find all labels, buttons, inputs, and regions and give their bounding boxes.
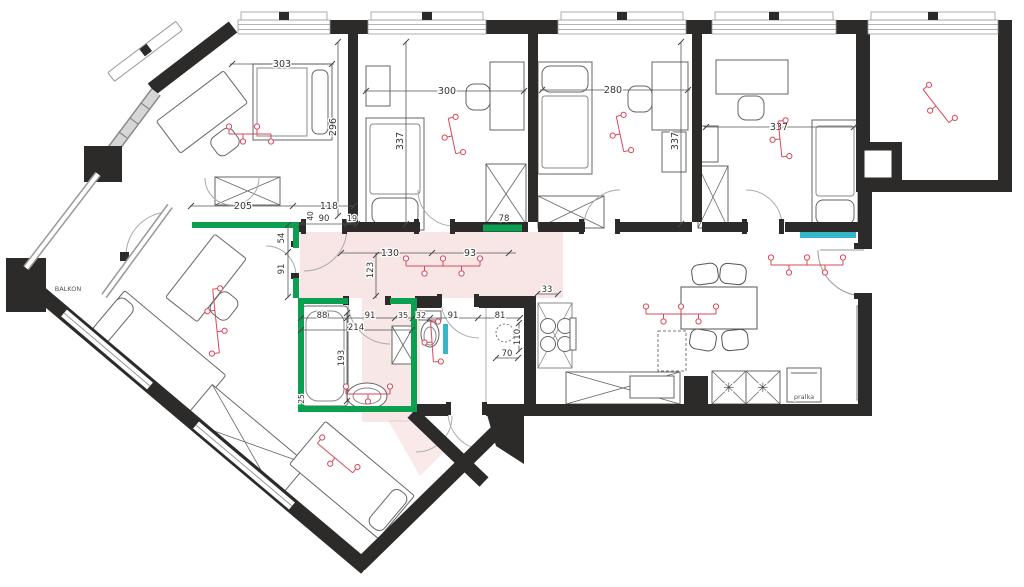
- wc-top-wall: [479, 296, 524, 308]
- door-jamb: [474, 294, 479, 307]
- dining-chair: [719, 263, 747, 286]
- dim-280: 280: [604, 85, 622, 96]
- socket-annotation: [606, 112, 634, 156]
- balcony-glazing-inner-fill: [104, 206, 170, 296]
- floor-plan-stage: ✳✳30329630033728033733720511890194054917…: [0, 0, 1024, 587]
- top-wall: [686, 20, 712, 34]
- dim-33: 33: [542, 285, 553, 295]
- balcony-glazing-outer-fill: [26, 174, 98, 268]
- door-jamb: [854, 293, 872, 299]
- room1-pillow: [312, 70, 328, 134]
- door-jamb: [437, 294, 442, 307]
- dim-88: 88: [317, 311, 328, 321]
- socket-annotation: [768, 255, 845, 275]
- dim-337-r2: 337: [395, 132, 406, 150]
- top-wall: [330, 20, 368, 34]
- dim-40: 40: [306, 211, 315, 221]
- dim-214: 214: [348, 323, 364, 333]
- room4-pillow: [816, 200, 854, 224]
- dining-chair: [691, 262, 720, 285]
- cooker-burner: [541, 319, 556, 334]
- wc-right-wall: [524, 296, 536, 404]
- dim-91-left: 91: [277, 264, 287, 275]
- room1-chair: [208, 125, 242, 158]
- dim-123: 123: [366, 262, 376, 278]
- socket-annotation: [914, 81, 959, 131]
- bottom-wall: [516, 404, 872, 416]
- radiator-mark-teal: [443, 324, 448, 354]
- cooker-handle: [570, 318, 576, 350]
- room-divider-1-2: [348, 34, 358, 222]
- burner-icon: ✳: [758, 381, 769, 396]
- corridor-wall: [785, 222, 858, 232]
- corridor-wall: [702, 222, 748, 232]
- corridor-wall: [358, 222, 420, 232]
- dim-54: 54: [277, 233, 287, 244]
- window: [712, 12, 836, 34]
- top-wall: [486, 20, 558, 34]
- shaft-opening: [864, 150, 892, 178]
- room-divider-3-4: [692, 34, 702, 222]
- door-jamb: [779, 219, 784, 234]
- door-jamb: [482, 402, 487, 415]
- dim-303: 303: [273, 59, 291, 70]
- cooker-burner: [541, 337, 556, 352]
- room3-pillow: [542, 66, 588, 92]
- door-jamb: [446, 402, 451, 415]
- dim-110: 110: [513, 329, 523, 345]
- vestibule-pink-zone: [388, 420, 448, 476]
- dim-118: 118: [320, 201, 338, 212]
- floor-plan-svg: ✳✳30329630033728033733720511890194054917…: [0, 0, 1024, 587]
- dining-table: [681, 287, 757, 329]
- dining-chair: [688, 328, 717, 352]
- room4-wardrobe: [698, 166, 728, 228]
- room4-door-arc: [746, 190, 782, 226]
- washer-label: pralka: [794, 393, 814, 401]
- right-wall-top-room: [998, 20, 1012, 192]
- door-jamb: [854, 243, 872, 249]
- kitchen-counter-inner: [630, 376, 674, 398]
- dim-35: 35: [398, 311, 408, 320]
- burner-icon: ✳: [724, 381, 735, 396]
- room4-chair: [738, 96, 764, 120]
- room2-desk: [490, 62, 524, 130]
- dim-337-r3: 337: [670, 132, 681, 150]
- corridor-pink-zone: [300, 232, 563, 298]
- dim-90: 90: [319, 214, 330, 224]
- wing-wardrobe: [183, 385, 308, 500]
- dim-193: 193: [337, 350, 347, 366]
- corridor-wall: [538, 222, 585, 232]
- dim-296: 296: [328, 118, 339, 136]
- dim-300: 300: [438, 86, 456, 97]
- socket-annotation: [438, 114, 466, 158]
- room2-pillow: [372, 198, 418, 224]
- room4-cabinet: [700, 126, 718, 162]
- window: [868, 12, 998, 34]
- dim-205: 205: [234, 201, 252, 212]
- dining-chair: [721, 329, 749, 352]
- room2-cabinet: [366, 66, 390, 106]
- door-jamb: [414, 219, 419, 234]
- dim-78: 78: [499, 214, 510, 224]
- right-wall: [858, 192, 872, 248]
- top-wall: [836, 20, 868, 34]
- dim-93: 93: [464, 248, 476, 259]
- balcony-label: BALKON: [55, 285, 82, 293]
- radiator-mark-teal: [800, 232, 856, 238]
- door-jamb: [615, 219, 620, 234]
- dim-19: 19: [347, 214, 357, 223]
- window: [238, 12, 330, 34]
- door-jamb: [742, 219, 747, 234]
- cooker-unit-x: [538, 303, 572, 368]
- door-jamb: [579, 219, 584, 234]
- kitchen-wall-stub: [684, 376, 708, 404]
- dim-32: 32: [416, 311, 426, 320]
- room-divider-2-3: [528, 34, 538, 222]
- dim-81: 81: [495, 311, 506, 321]
- dim-70: 70: [502, 349, 513, 359]
- room4-desk: [716, 60, 788, 94]
- dim-130: 130: [381, 248, 399, 259]
- door-jamb: [450, 219, 455, 234]
- dim-25: 25: [297, 394, 306, 404]
- window: [558, 12, 686, 34]
- room2-chair: [466, 84, 490, 110]
- vent-dashed-circle: [496, 324, 514, 342]
- room3-desk: [652, 62, 688, 130]
- fridge-dashed: [658, 331, 686, 371]
- dim-91-b: 91: [448, 311, 459, 321]
- window: [368, 12, 486, 34]
- window-pier-block: [84, 146, 122, 182]
- right-wall: [858, 296, 872, 404]
- dim-91-a: 91: [365, 311, 376, 321]
